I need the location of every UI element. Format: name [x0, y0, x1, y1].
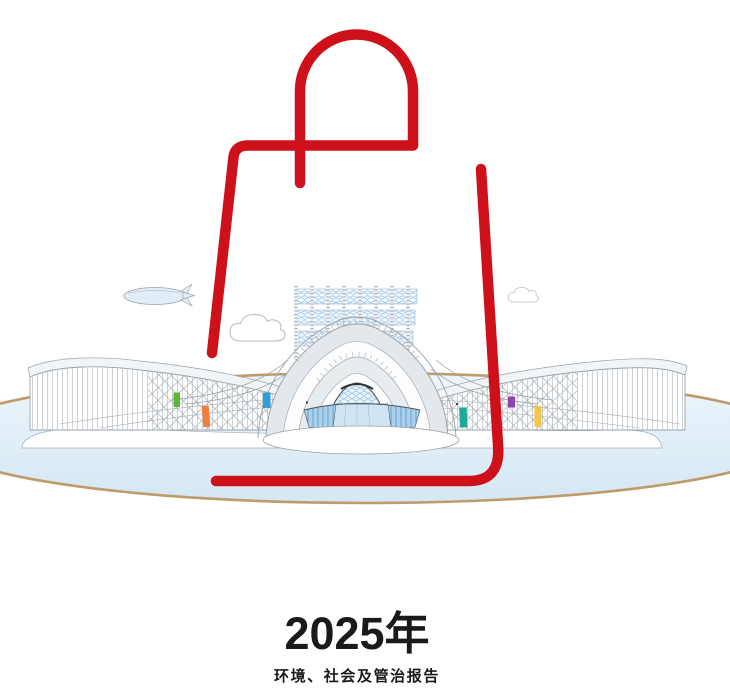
- report-year-title: 2025年: [0, 611, 714, 656]
- visitor-marker: [202, 406, 210, 427]
- visitor-marker: [263, 393, 271, 409]
- cover-illustration: [0, 0, 730, 520]
- cloud-icon: [230, 315, 285, 342]
- visitor-marker: [459, 407, 467, 427]
- forecourt-ellipse: [263, 426, 459, 454]
- esg-report-cover: 2025年 环境、社会及管治报告: [0, 0, 730, 694]
- left-wing: [28, 358, 295, 432]
- visitor-marker: [508, 397, 515, 408]
- right-wing: [435, 359, 687, 432]
- airship-icon: [124, 284, 195, 306]
- bag-handle: [300, 34, 413, 183]
- visitor-marker: [535, 406, 542, 427]
- cover-titles: 2025年 环境、社会及管治报告: [0, 611, 714, 686]
- cloud-icon-small: [508, 287, 538, 302]
- visitor-marker: [174, 393, 181, 408]
- report-subtitle: 环境、社会及管治报告: [0, 665, 714, 686]
